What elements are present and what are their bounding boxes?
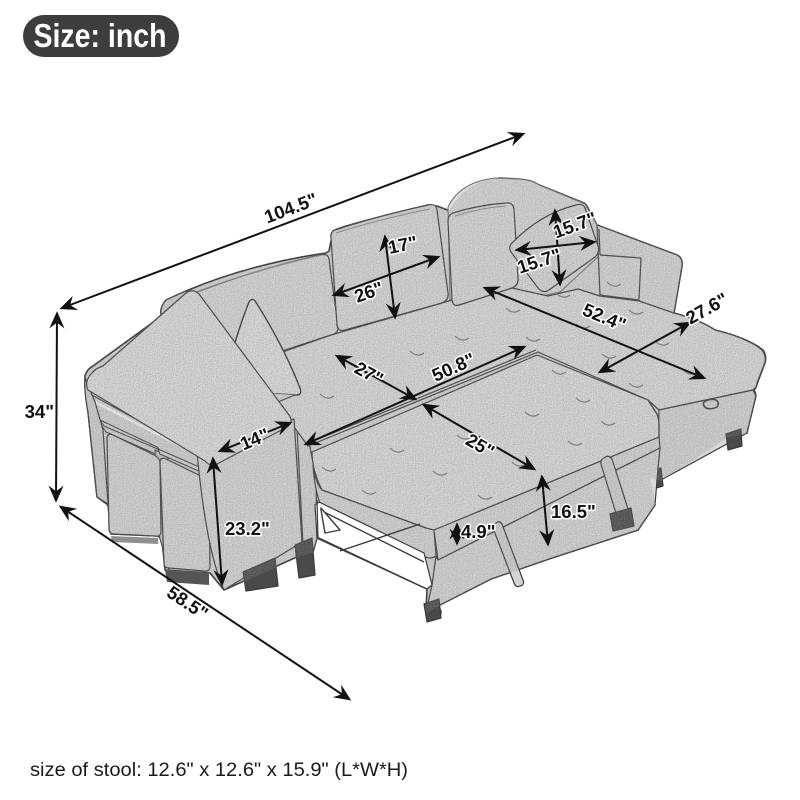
svg-text:23.2": 23.2" — [225, 518, 270, 539]
svg-text:58.5": 58.5" — [163, 581, 212, 623]
svg-text:16.5": 16.5" — [551, 501, 596, 522]
svg-text:size of stool: 12.6" x 12.6" x: size of stool: 12.6" x 12.6" x 15.9" (L*… — [30, 760, 408, 781]
svg-text:34": 34" — [25, 401, 54, 422]
svg-text:Size: inch: Size: inch — [34, 17, 167, 54]
svg-text:4.9": 4.9" — [461, 521, 496, 542]
svg-text:27.6": 27.6" — [682, 288, 731, 328]
